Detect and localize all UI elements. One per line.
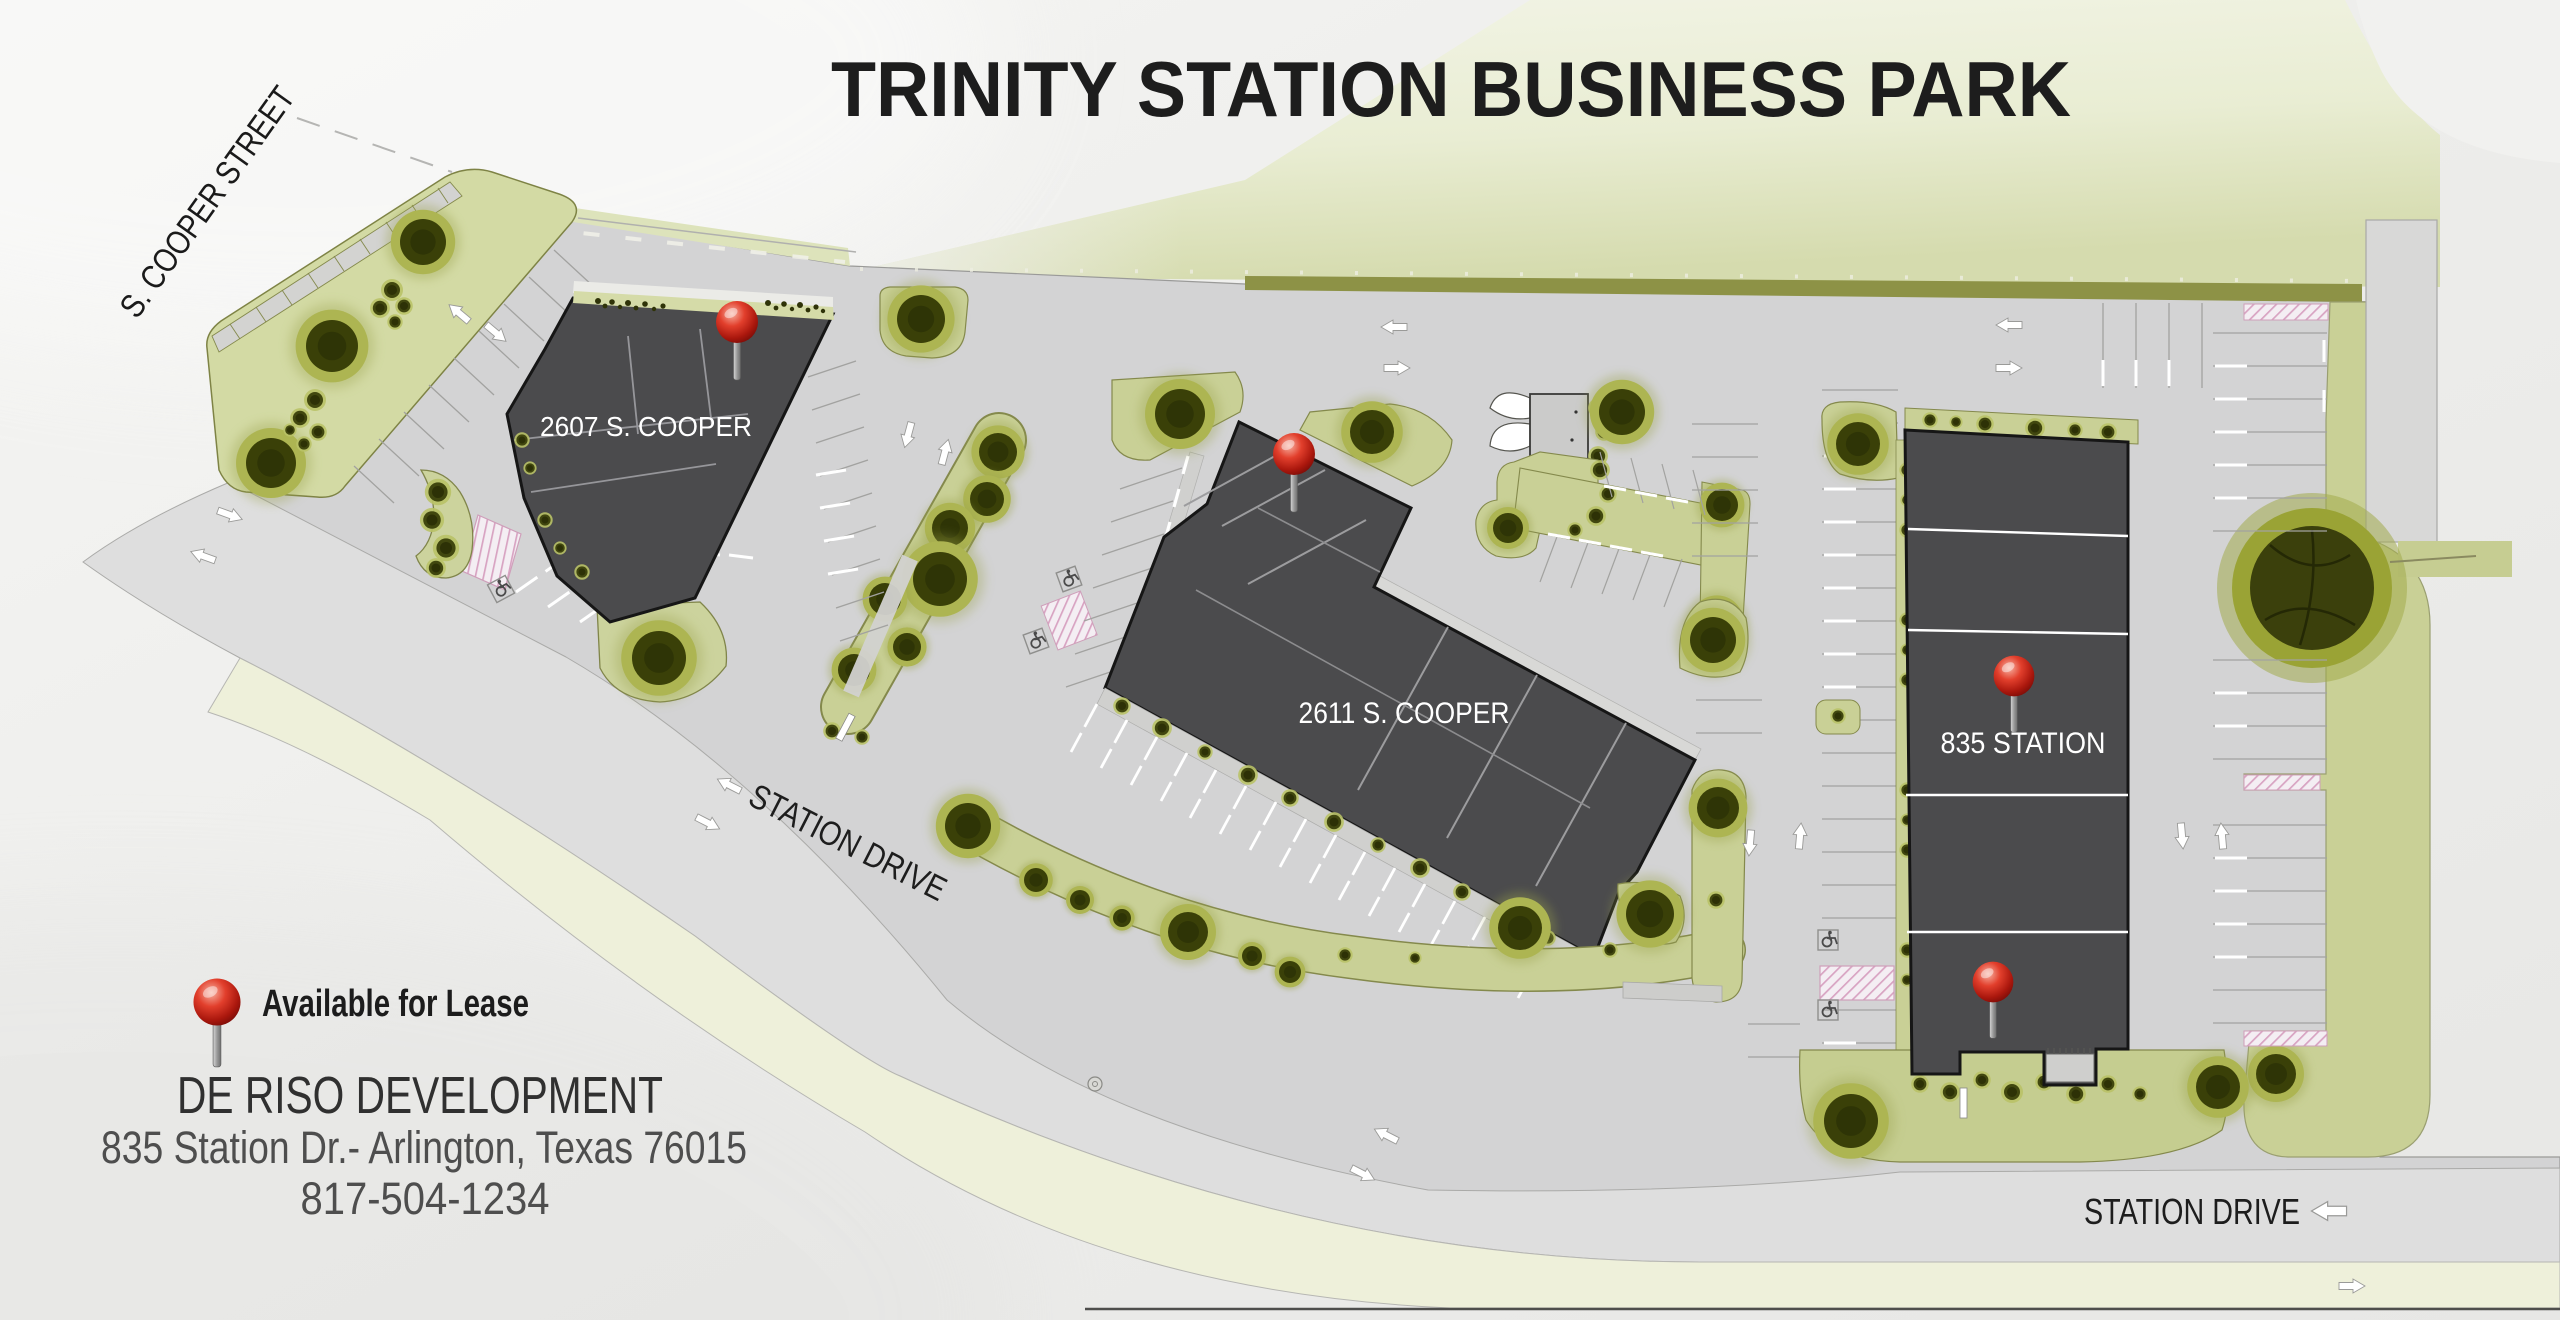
svg-text:TRINITY STATION BUSINESS PARK: TRINITY STATION BUSINESS PARK bbox=[831, 45, 2071, 133]
svg-text:817-504-1234: 817-504-1234 bbox=[301, 1173, 550, 1224]
svg-text:2611 S. COOPER: 2611 S. COOPER bbox=[1299, 697, 1510, 730]
svg-text:DE RISO DEVELOPMENT: DE RISO DEVELOPMENT bbox=[177, 1067, 663, 1125]
svg-text:STATION DRIVE: STATION DRIVE bbox=[2084, 1191, 2300, 1232]
svg-text:835 STATION: 835 STATION bbox=[1941, 727, 2106, 760]
svg-text:835 Station Dr.- Arlington, Te: 835 Station Dr.- Arlington, Texas 76015 bbox=[101, 1122, 747, 1173]
svg-text:2607 S. COOPER: 2607 S. COOPER bbox=[540, 411, 752, 442]
svg-text:Available for Lease: Available for Lease bbox=[262, 983, 529, 1025]
